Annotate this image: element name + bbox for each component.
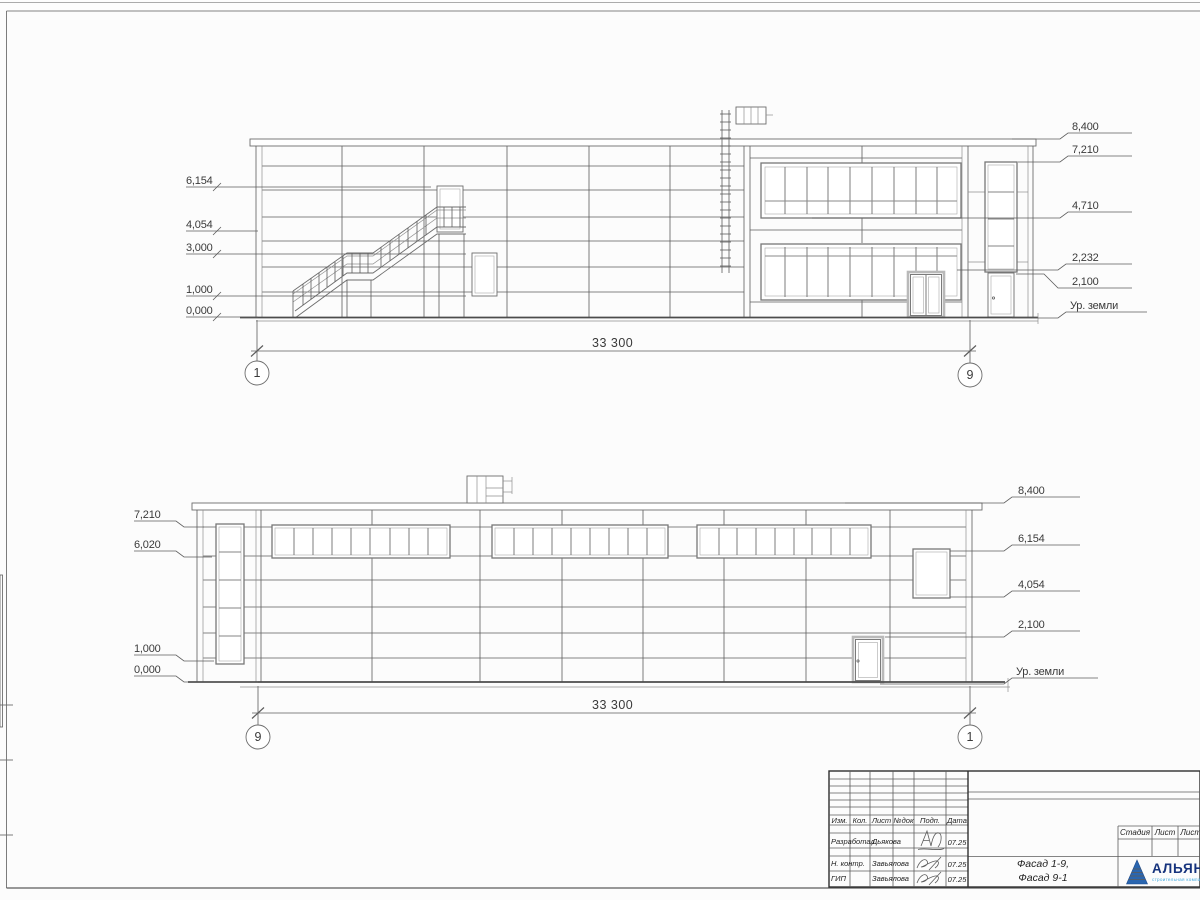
- titleblock-sheet-header: Лист: [1152, 828, 1178, 837]
- facade-drawing-canvas: [0, 0, 1200, 900]
- tower-glazing-strip: [985, 162, 1017, 272]
- roof-vent-unit: [467, 476, 512, 503]
- sheet-title-line1: Фасад 1-9,: [968, 858, 1118, 870]
- elevation-mark: 1,000: [186, 284, 213, 296]
- axis-bubble-label: 9: [246, 730, 270, 744]
- small-window: [472, 253, 497, 296]
- facade-9-1-ground: [188, 678, 1010, 692]
- titleblock-role: Разработал: [831, 837, 875, 846]
- facade-1-9: [186, 107, 1147, 387]
- elevation-mark: 0,000: [134, 664, 161, 676]
- elevation-mark: 2,100: [1072, 276, 1099, 288]
- sheet-frame: [0, 3, 1200, 889]
- elevation-mark: 4,054: [1018, 579, 1045, 591]
- titleblock-col-header: Кол.: [850, 816, 870, 825]
- titleblock-col-header: Изм.: [829, 816, 850, 825]
- elevation-mark: 2,100: [1018, 619, 1045, 631]
- tower-door: [988, 273, 1014, 317]
- axis-bubble-label: 1: [958, 730, 982, 744]
- titleblock-role: ГИП: [831, 874, 846, 883]
- ground-level-label: Ур. земли: [1016, 666, 1064, 678]
- ribbon-band-1: [272, 525, 450, 558]
- titleblock-col-header: №док: [892, 816, 915, 825]
- elevation-mark: 4,054: [186, 219, 213, 231]
- entrance-door: [908, 272, 944, 317]
- stair-door: [437, 186, 463, 232]
- titleblock-date: 07.25: [946, 860, 968, 869]
- elevation-mark: 6,020: [134, 539, 161, 551]
- titleblock-col-header: Лист: [870, 816, 893, 825]
- ground-level-label: Ур. земли: [1070, 300, 1118, 312]
- titleblock-role: Н. контр.: [831, 859, 865, 868]
- titleblock-name: Завьялова: [872, 859, 909, 868]
- titleblock-date: 07.25: [946, 875, 968, 884]
- ribbon-band-2: [492, 525, 668, 558]
- titleblock-col-header: Дата: [946, 816, 968, 825]
- titleblock-date: 07.25: [946, 838, 968, 847]
- titleblock-stage-header: Стадия: [1118, 828, 1152, 837]
- ribbon-band-3: [697, 525, 871, 558]
- single-window: [913, 549, 950, 598]
- axis-bubble-label: 9: [958, 368, 982, 382]
- facade-1-9-windows: [437, 162, 1017, 317]
- elevation-mark: 8,400: [1018, 485, 1045, 497]
- back-door: [853, 637, 883, 682]
- elevation-mark: 3,000: [186, 242, 213, 254]
- logo-subtitle: строительная компания: [1152, 877, 1200, 882]
- logo-triangle-icon: [1127, 860, 1148, 884]
- elevation-mark: 2,232: [1072, 252, 1099, 264]
- axis-bubble-label: 1: [245, 366, 269, 380]
- elevation-mark: 4,710: [1072, 200, 1099, 212]
- elevation-mark: 6,154: [1018, 533, 1045, 545]
- elevation-mark: 6,154: [186, 175, 213, 187]
- titleblock-sheets-header: Листов: [1178, 828, 1200, 837]
- drawing-sheet: { "top_facade": { "axis_left": "1", "axi…: [0, 0, 1200, 900]
- logo-text: АЛЬЯНС: [1152, 861, 1200, 876]
- ribbon-window-upper: [761, 163, 961, 218]
- dimension-label: 33 300: [592, 698, 633, 712]
- elevation-mark: 8,400: [1072, 121, 1099, 133]
- elevation-mark: 7,210: [134, 509, 161, 521]
- sheet-title-line2: Фасад 9-1: [968, 872, 1118, 884]
- dimension-label: 33 300: [592, 336, 633, 350]
- elevation-mark: 1,000: [134, 643, 161, 655]
- titleblock-name: Дьякова: [872, 837, 901, 846]
- elevation-mark: 0,000: [186, 305, 213, 317]
- titleblock-name: Завьялова: [872, 874, 909, 883]
- elevation-mark: 7,210: [1072, 144, 1099, 156]
- titleblock-col-header: Подп.: [914, 816, 946, 825]
- tower-glazing-strip-2: [216, 524, 244, 664]
- signature-marks: [917, 831, 944, 885]
